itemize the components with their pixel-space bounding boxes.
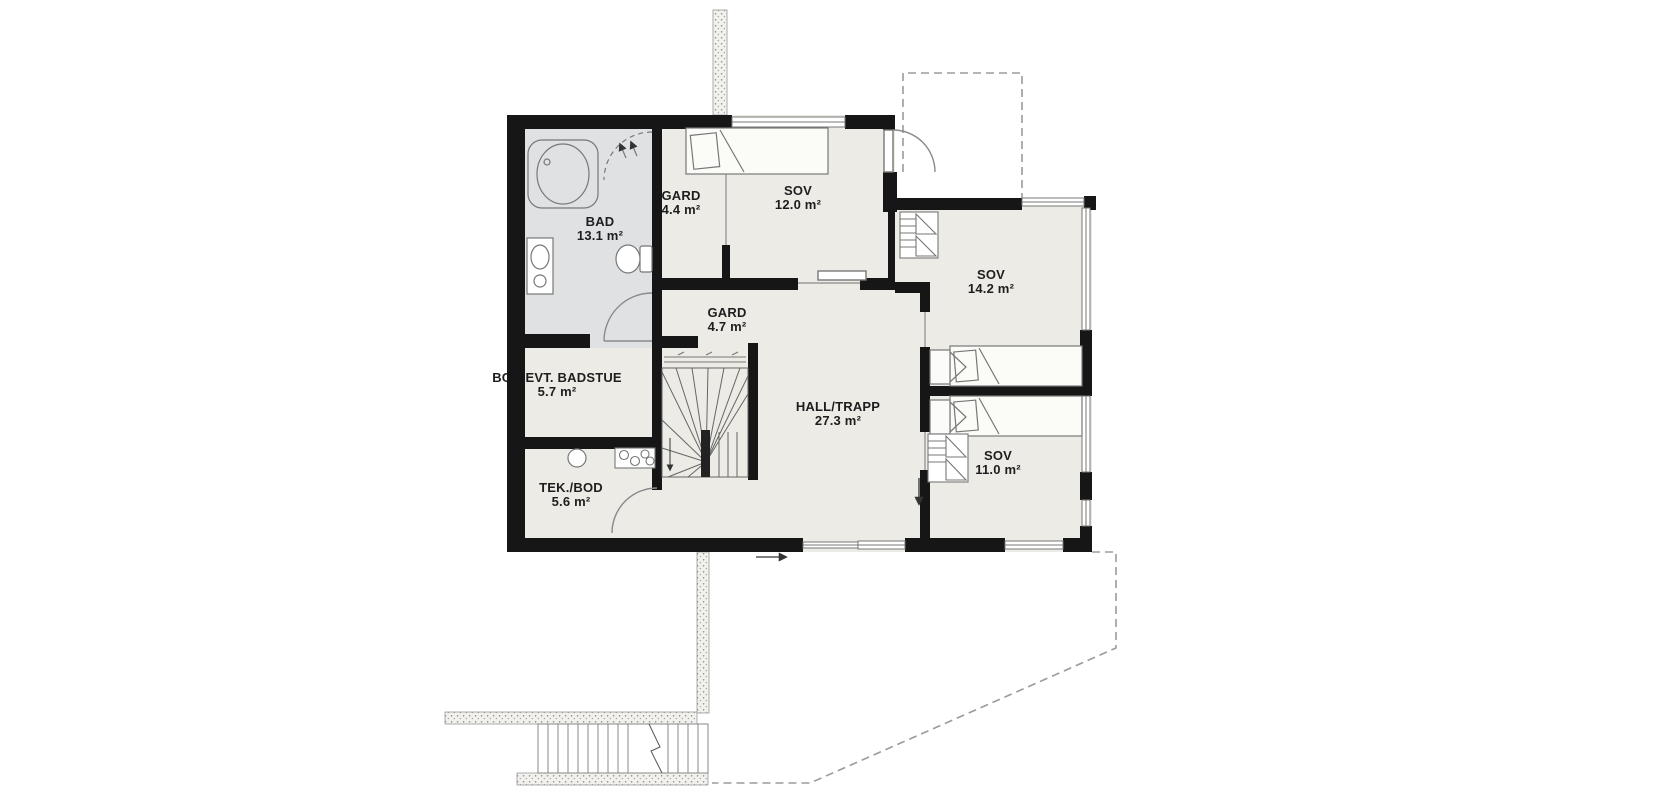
- room-label-tek: TEK./BOD 5.6 m²: [539, 481, 603, 509]
- room-area: 13.1 m²: [577, 228, 623, 243]
- room-area: 12.0 m²: [775, 197, 821, 212]
- water-heater-label: 8.8: [573, 455, 581, 461]
- room-name: BAD: [586, 214, 615, 229]
- room-area: 27.3 m²: [815, 413, 861, 428]
- room-label-bad: BAD 13.1 m²: [577, 215, 623, 243]
- room-name: SOV: [984, 448, 1012, 463]
- room-label-gard47: GARD 4.7 m²: [707, 306, 746, 334]
- room-area: 4.7 m²: [708, 319, 747, 334]
- room-area: 11.0 m²: [975, 462, 1021, 477]
- room-name: SOV: [977, 267, 1005, 282]
- room-label-hall: HALL/TRAPP 27.3 m²: [796, 400, 880, 428]
- room-area: 14.2 m²: [968, 281, 1014, 296]
- floor-plan: BAD 13.1 m² GARD 4.4 m² SOV 12.0 m² SOV …: [0, 0, 1670, 800]
- room-area: 5.7 m²: [538, 384, 577, 399]
- room-label-sov11: SOV 11.0 m²: [975, 449, 1021, 477]
- room-label-gard44: GARD 4.4 m²: [661, 189, 700, 217]
- room-name: GARD: [707, 305, 746, 320]
- room-name: SOV: [784, 183, 812, 198]
- room-name: BOD/EVT. BADSTUE: [492, 370, 622, 385]
- room-area: 4.4 m²: [662, 202, 701, 217]
- room-area: 5.6 m²: [552, 494, 591, 509]
- room-label-sov12: SOV 12.0 m²: [775, 184, 821, 212]
- room-name: GARD: [661, 188, 700, 203]
- room-name: HALL/TRAPP: [796, 399, 880, 414]
- room-name: TEK./BOD: [539, 480, 603, 495]
- room-labels: BAD 13.1 m² GARD 4.4 m² SOV 12.0 m² SOV …: [0, 0, 1670, 800]
- room-label-sov142: SOV 14.2 m²: [968, 268, 1014, 296]
- room-label-bod: BOD/EVT. BADSTUE 5.7 m²: [492, 371, 622, 399]
